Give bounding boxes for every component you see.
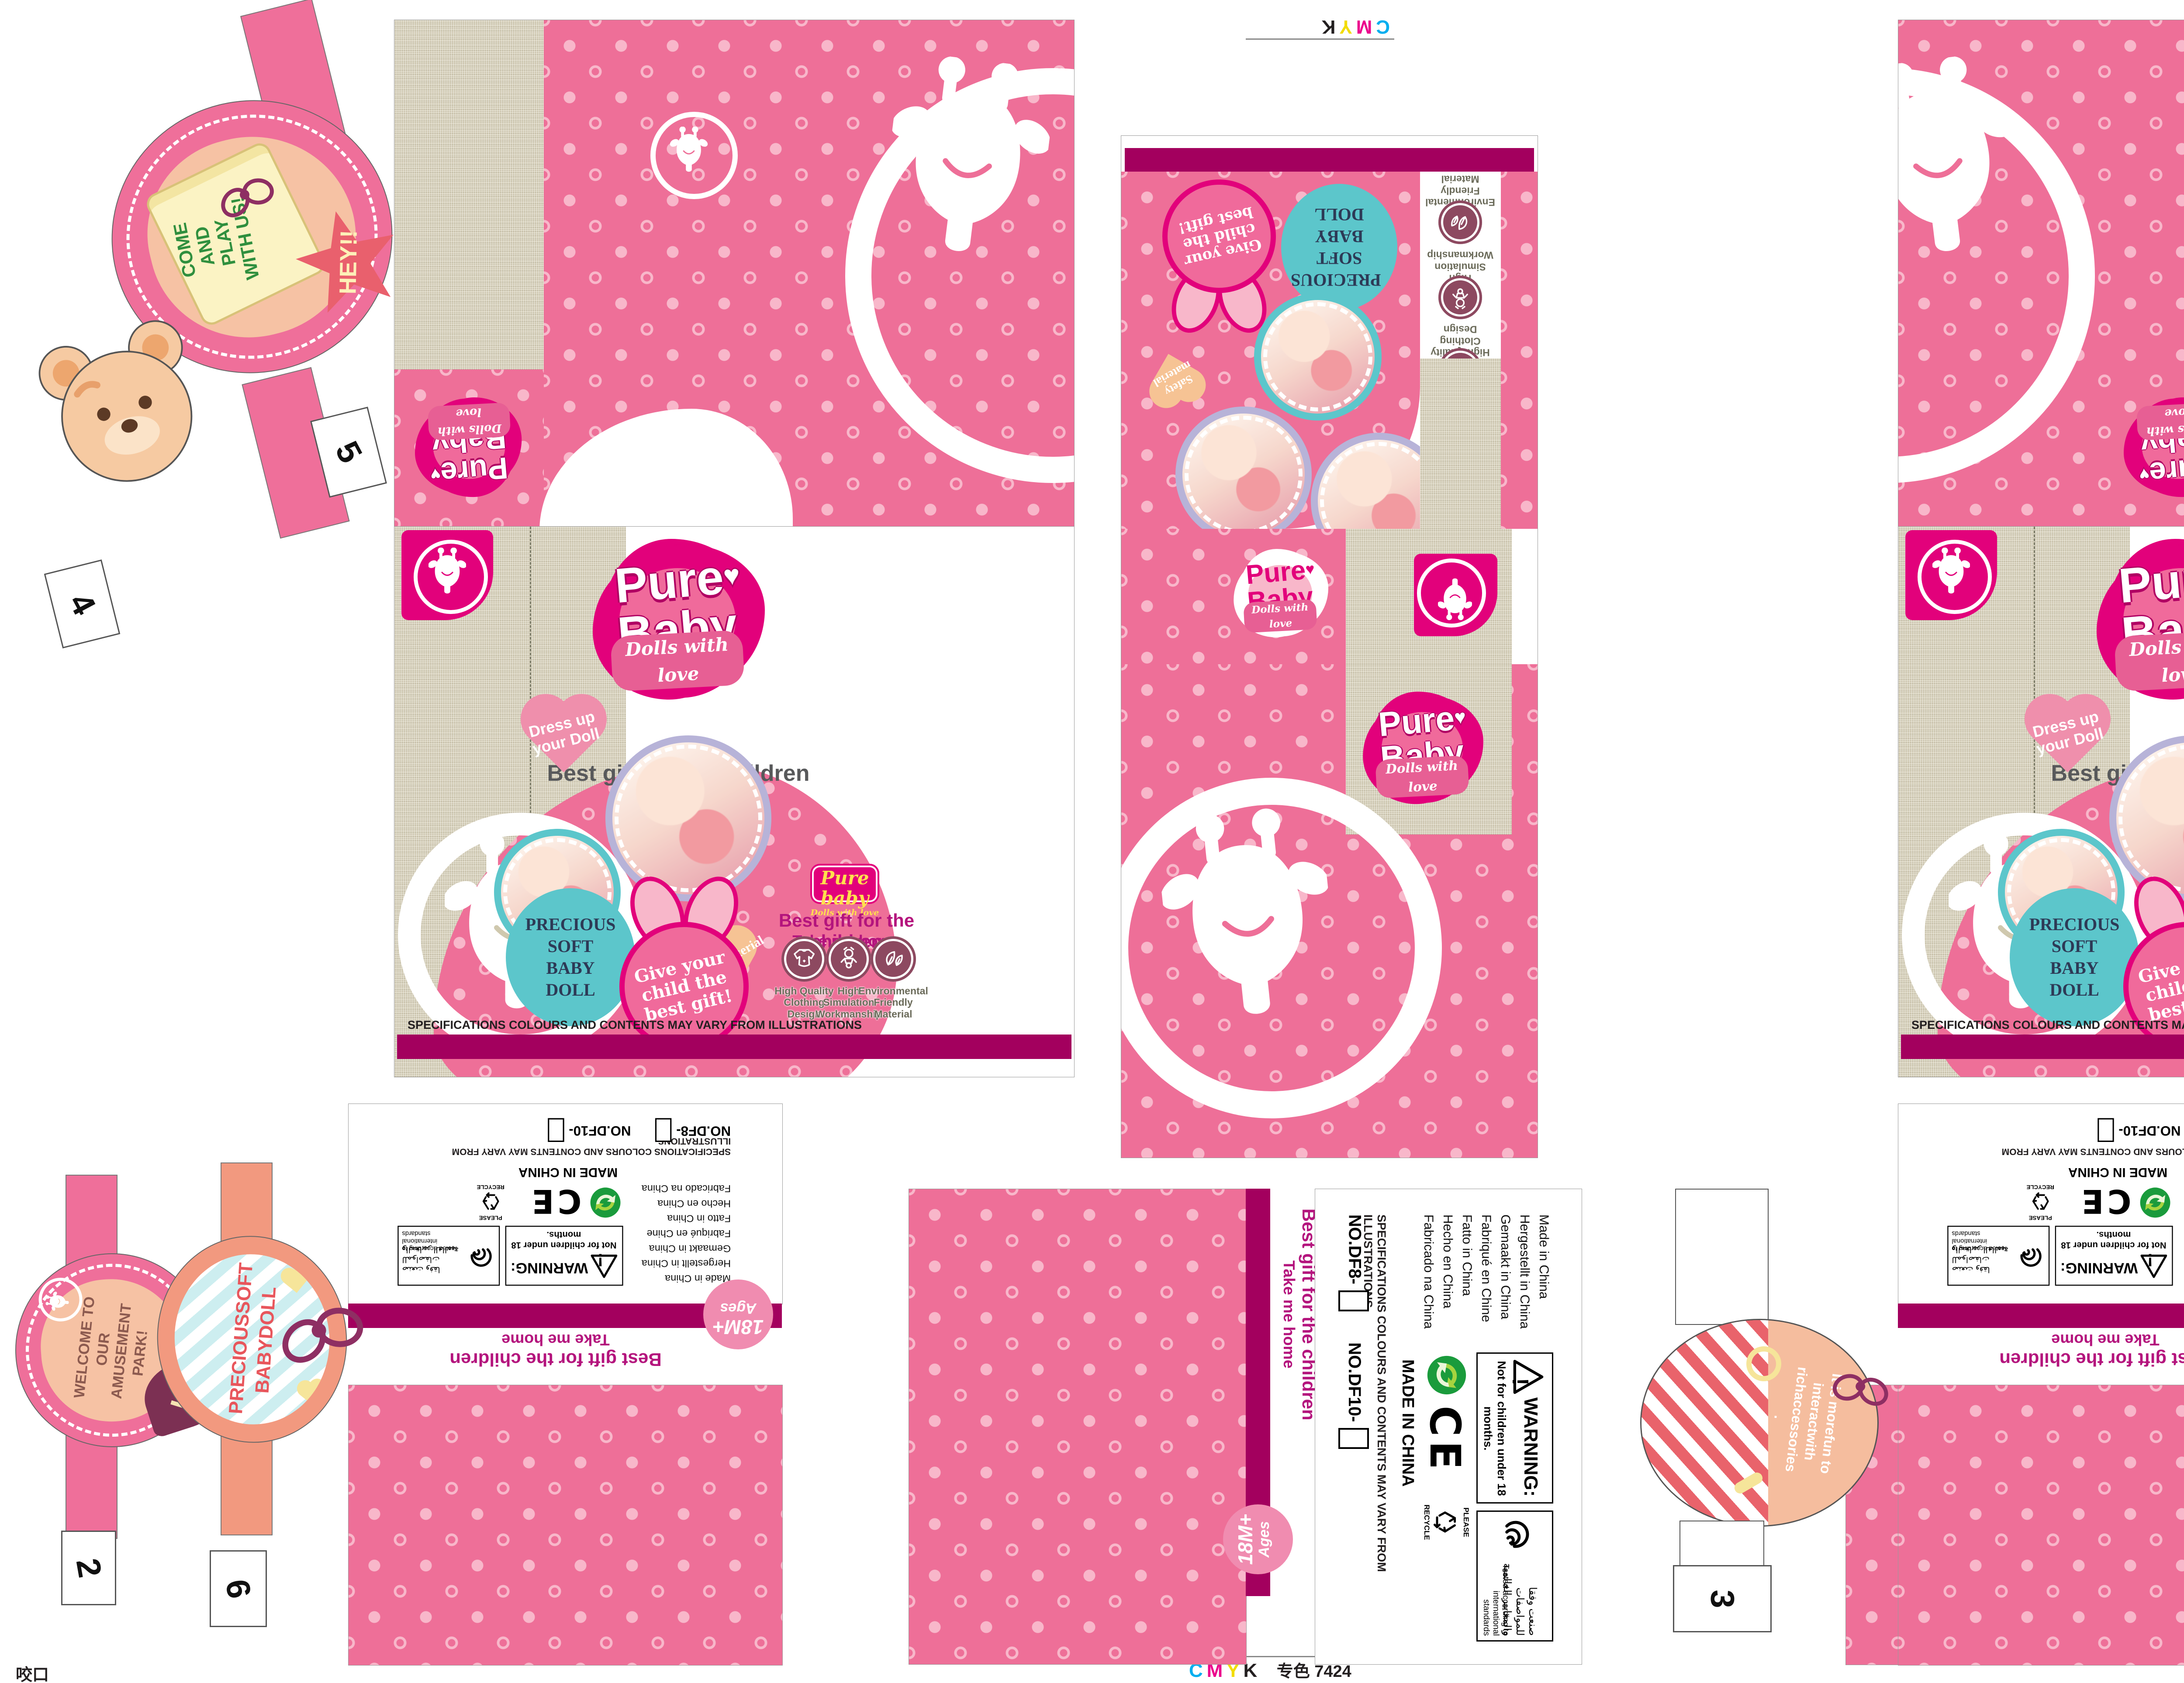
recycle-mark: PLEASE RECYCLE	[2022, 1183, 2059, 1221]
svg-text:!: !	[598, 1254, 604, 1270]
top-flap-right: Pure♥ Baby Dolls with love	[1898, 20, 2184, 527]
model-no-df8: NO.DF8- NO.DF10-	[2098, 1118, 2184, 1142]
leaves-icon	[1448, 210, 1472, 235]
onesie-icon	[791, 946, 817, 972]
feature-column: Environmental Friendly Material High Sim…	[1420, 172, 1501, 359]
warning-text: Not for children under 18 months.	[511, 1230, 617, 1251]
warning-box: ! WARNING: Not for children under 18 mon…	[2055, 1226, 2173, 1286]
pure-baby-logo: Pure♥ Baby Dolls with love	[599, 545, 756, 698]
dress-up-heart: Dress up your Doll	[511, 680, 616, 785]
checkbox	[2098, 1118, 2114, 1142]
accent-stripe	[1901, 1035, 2184, 1059]
recycle-icon	[478, 1190, 503, 1214]
flap-number-6: 6	[210, 1550, 267, 1627]
recycle-icon	[1431, 1506, 1462, 1538]
polka-bottom	[1898, 1385, 2184, 1666]
front-panel-left: Pure♥ Baby Dolls with love Best gift for…	[394, 526, 1075, 1077]
black-mark: K	[1322, 16, 1336, 38]
made-in-list: Made in ChinaHergestellt in China Gemaak…	[1419, 1214, 1553, 1329]
model-no-df8: NO.DF8- NO.DF10-	[548, 1118, 731, 1142]
recycle-mark: PLEASE RECYCLE	[1422, 1498, 1470, 1546]
svg-text:!: !	[2147, 1254, 2153, 1270]
polka-edge	[1501, 172, 1538, 529]
precious-oval: PRECIOUS SOFT BABY DOLL	[1281, 184, 1397, 310]
giraffe-icon	[877, 51, 1058, 273]
ce-mark-icon: CE	[1420, 1406, 1469, 1474]
flap-number-4: 4	[44, 559, 121, 648]
pure-baby-logo: Pure♥ Baby Dolls with love	[420, 399, 518, 493]
brand-badge: Pure baby Dolls with love	[810, 864, 879, 904]
checkbox	[1338, 1428, 1369, 1449]
accent-stripe	[397, 1035, 1071, 1059]
conformity-icon	[2015, 1242, 2044, 1272]
eco-icon	[1438, 200, 1482, 244]
linen-side-strip	[394, 20, 544, 369]
made-in-china-bold: MADE IN CHINA	[518, 1165, 618, 1179]
doll-photo	[605, 735, 771, 901]
precious-oval: PRECIOUS SOFT BABY DOLL	[2010, 888, 2139, 1026]
cmyk-mark-top: C M Y K	[1250, 11, 1390, 38]
doll-photo	[1175, 407, 1312, 543]
warning-triangle-icon: !	[1513, 1360, 1544, 1394]
tested-english: Tested according to international standa…	[1481, 1557, 1510, 1636]
conformity-icon	[1498, 1517, 1535, 1555]
warning-triangle-icon: !	[2141, 1254, 2167, 1279]
bite-mark-label: 咬口	[16, 1661, 49, 1683]
bottom-panel-left: Made in ChinaHergestellt in China Gemaak…	[348, 1104, 782, 1665]
cyan-mark: C	[1376, 16, 1390, 38]
packaging-dieline-sheet: C M Y K C M Y K 专色 7424 DF8 DF10 展示盒 241…	[0, 0, 2184, 1683]
heart-icon: ♥	[1453, 706, 1467, 729]
white-swoosh	[539, 409, 793, 527]
pure-baby-logo: Pure♥ Baby Dolls with love	[2103, 545, 2184, 698]
back-headline: Best gift for the children Take me home	[449, 1331, 663, 1370]
disclaimer: SPECIFICATIONS COLOURS AND CONTENTS MAY …	[408, 1018, 862, 1032]
workmanship-icon	[1438, 276, 1482, 319]
warning-text: Not for children under 18 months.	[1481, 1361, 1508, 1496]
quality-icon	[781, 936, 827, 982]
disclaimer: SPECIFICATIONS COLOURS AND CONTENTS MAY …	[1911, 1018, 2184, 1032]
warning-title: WARNING:	[1520, 1397, 1541, 1497]
pacifier-icon	[1746, 1346, 1781, 1381]
heart-icon: ♥	[2139, 464, 2150, 485]
green-dot-icon	[590, 1187, 621, 1218]
pure-baby-logo: Pure♥ Baby Dolls with love	[2129, 399, 2184, 493]
bottom-center-panel: 18M+Ages Best gift for the children Take…	[909, 1189, 1581, 1664]
dieline-center: SPECIFICATIONS COLOURS AND CONTENTS MAY …	[1121, 135, 1538, 1158]
regulatory-panel: Made in ChinaHergestellt in China Gemaak…	[1898, 1104, 2184, 1304]
bottom-panel-right: Made in ChinaHergestellt in China Gemaak…	[1898, 1104, 2184, 1665]
green-dot-icon	[1427, 1355, 1467, 1395]
age-badge: 18M+Ages	[703, 1279, 773, 1349]
baby-icon	[836, 946, 861, 972]
polka-flap	[544, 20, 1074, 527]
svg-text:!: !	[1513, 1378, 1533, 1385]
polka-panel	[909, 1189, 1247, 1665]
precious-oval: PRECIOUS SOFT BABY DOLL	[506, 888, 635, 1026]
age-badge: 18M+Ages	[1223, 1504, 1293, 1574]
polka-bottom	[348, 1385, 783, 1666]
flap-number-2: 2	[61, 1531, 116, 1605]
model-no-df8: NO.DF8- NO.DF10-	[1338, 1214, 1369, 1449]
recycle-mark: PLEASE RECYCLE	[472, 1183, 509, 1221]
balloon-face: It is morefun to interactwith richaccess…	[1640, 1319, 1879, 1527]
heart-icon: ♥	[1305, 560, 1315, 578]
workmanship-icon	[826, 936, 871, 982]
checkbox	[1338, 1290, 1369, 1311]
pure-baby-logo: Pure♥ Baby Dolls with love	[1367, 696, 1477, 803]
warning-title: WARNING:	[511, 1259, 588, 1276]
giraffe-icon	[1154, 803, 1342, 1037]
giraffe-icon	[1898, 51, 2028, 273]
regulatory-panel: Made in ChinaHergestellt in China Gemaak…	[348, 1104, 783, 1304]
warning-box: ! WARNING: Not for children under 18 mon…	[1476, 1352, 1553, 1504]
conformity-icon	[465, 1242, 494, 1272]
hey-star: HEY!!	[285, 199, 412, 326]
recycle-icon	[2028, 1190, 2053, 1214]
baby-icon	[1448, 285, 1472, 310]
dress-up-heart: Dress up your Doll	[2015, 680, 2120, 785]
conformity-box: صنعت وفقا للمواصفات والمعايير العالمية T…	[397, 1226, 500, 1286]
back-headline: Best gift for the children Take me home	[1998, 1331, 2184, 1370]
balloon-tag: It is morefun to interactwith richaccess…	[1640, 1189, 1894, 1630]
conformity-box: صنعت وفقا للمواصفات والمعايير العالمية T…	[1947, 1226, 2049, 1286]
front-panel-right: Pure♥ Baby Dolls with love Best gift for…	[1898, 526, 2184, 1077]
regulatory-panel: Made in ChinaHergestellt in China Gemaak…	[1315, 1189, 1582, 1665]
green-dot-icon	[2139, 1187, 2171, 1218]
tag-strap	[1679, 1521, 1764, 1566]
spot-color-label: 专色 7424	[1277, 1662, 1351, 1681]
vertical-headline: Best gift for the children Take me home	[1275, 1201, 1319, 1428]
checkbox	[655, 1118, 671, 1142]
pure-baby-logo: Pure♥ Baby Dolls with love	[1237, 552, 1324, 637]
heart-icon: ♥	[722, 559, 741, 592]
warning-text: Not for children under 18 months.	[2061, 1230, 2167, 1251]
conformity-box: صنعت وفقا للمواصفات والمعايير العالمية T…	[1476, 1511, 1553, 1642]
heart-icon: ♥	[430, 464, 442, 485]
made-in-list: Made in ChinaHergestellt in China Gemaak…	[642, 1181, 731, 1286]
flap-number-3: 3	[1673, 1565, 1772, 1632]
eco-icon	[871, 936, 916, 982]
warning-box: ! WARNING: Not for children under 18 mon…	[505, 1226, 623, 1286]
ce-mark-icon: CE	[2078, 1182, 2132, 1220]
made-in-china-bold: MADE IN CHINA	[2068, 1165, 2167, 1179]
leaves-icon	[881, 946, 906, 972]
give-badge: Give your child the best gift!	[1162, 179, 1276, 293]
made-in-china-bold: MADE IN CHINA	[1398, 1359, 1417, 1486]
accent-stripe	[1125, 148, 1534, 172]
accent-stripe	[1898, 1304, 2184, 1328]
tested-english: Tested according to international standa…	[402, 1230, 463, 1252]
warning-title: WARNING:	[2060, 1259, 2138, 1276]
tested-english: Tested according to international standa…	[1952, 1230, 2013, 1252]
crop-line	[1246, 38, 1394, 40]
top-flap-left: Pure♥ Baby Dolls with love	[394, 20, 1075, 527]
doll-photo	[1254, 293, 1382, 421]
warning-triangle-icon: !	[591, 1254, 618, 1279]
checkbox	[548, 1118, 564, 1142]
magenta-mark: M	[1356, 16, 1372, 38]
yellow-mark: Y	[1339, 16, 1352, 38]
ce-mark-icon: CE	[529, 1182, 582, 1220]
giraffe-ring-icon	[650, 112, 738, 199]
linen-column	[1420, 359, 1501, 529]
feature-label: Environmental Friendly Material	[857, 985, 929, 1020]
tag-strap	[1675, 1189, 1769, 1325]
